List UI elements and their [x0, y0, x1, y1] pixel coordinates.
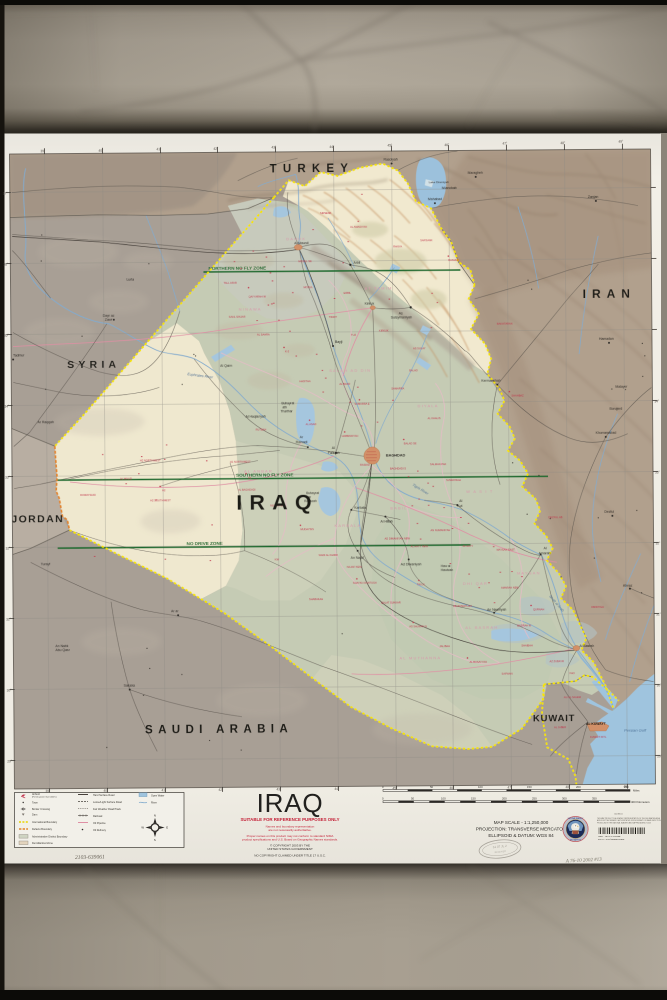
svg-text:IRAN: IRAN — [583, 287, 636, 301]
svg-text:RANYA: RANYA — [393, 244, 402, 248]
svg-text:Al Mawsil: Al Mawsil — [294, 241, 309, 245]
svg-text:Al Basrah: Al Basrah — [579, 644, 594, 648]
svg-text:250: 250 — [532, 796, 537, 800]
svg-text:Sulaymaniyah: Sulaymaniyah — [391, 315, 412, 319]
svg-text:AD DIWANIYAH NEW: AD DIWANIYAH NEW — [385, 536, 411, 540]
svg-text:SHAYKH HANTUSH: SHAYKH HANTUSH — [353, 581, 377, 585]
svg-text:SHAIBAH: SHAIBAH — [521, 643, 533, 647]
svg-text:Dezful: Dezful — [604, 510, 614, 514]
svg-text:35°: 35° — [4, 334, 10, 338]
svg-text:37°: 37° — [3, 192, 9, 196]
svg-text:Karbala: Karbala — [354, 506, 366, 510]
svg-text:Fair Weather Road/Track: Fair Weather Road/Track — [93, 808, 122, 811]
svg-text:BALAD SE: BALAD SE — [404, 441, 417, 445]
svg-text:AL JABER: AL JABER — [554, 725, 566, 729]
svg-text:42°: 42° — [218, 788, 224, 792]
svg-text:350: 350 — [592, 796, 597, 800]
svg-text:IRAQ: IRAQ — [236, 490, 319, 515]
svg-text:W A S I T: W A S I T — [466, 489, 493, 494]
svg-text:NAJAF NEW: NAJAF NEW — [347, 565, 363, 569]
svg-text:32°: 32° — [6, 547, 12, 551]
svg-text:Open Water: Open Water — [151, 794, 165, 797]
svg-text:Al Hillah: Al Hillah — [380, 520, 393, 524]
svg-text:Tharthar: Tharthar — [281, 409, 294, 413]
svg-text:SALMAN PAK: SALMAN PAK — [430, 462, 447, 466]
svg-text:S: S — [154, 838, 156, 842]
svg-text:are not necessarily authoritat: are not necessarily authoritative. — [268, 828, 311, 832]
svg-text:ALI AL SALEM: ALI AL SALEM — [564, 695, 581, 699]
svg-text:33°: 33° — [655, 470, 661, 474]
svg-text:Lake Drumiyeh: Lake Drumiyeh — [429, 180, 450, 184]
svg-text:45°: 45° — [387, 144, 393, 148]
svg-text:ELLIPSOID & DATUM: WGS 84: ELLIPSOID & DATUM: WGS 84 — [488, 833, 554, 838]
svg-text:Maragheh: Maragheh — [468, 171, 483, 175]
svg-text:49°: 49° — [618, 140, 624, 144]
svg-text:AN NUMANIYAH: AN NUMANIYAH — [430, 528, 450, 532]
svg-text:SALAH AD DIN: SALAH AD DIN — [329, 368, 371, 373]
svg-text:An Najaf: An Najaf — [351, 556, 364, 560]
svg-text:2103-639061: 2103-639061 — [75, 854, 105, 861]
svg-text:MAYSAN: MAYSAN — [517, 570, 541, 575]
svg-text:Ar Raqqah: Ar Raqqah — [38, 420, 54, 424]
svg-text:Ahvaz: Ahvaz — [623, 584, 633, 588]
svg-text:H2 SOUTHWEST: H2 SOUTHWEST — [150, 498, 171, 502]
svg-text:47°: 47° — [502, 142, 508, 146]
svg-text:AL ASAD: AL ASAD — [306, 422, 317, 426]
svg-text:48°: 48° — [565, 785, 571, 789]
svg-text:AL KUWAYT: AL KUWAYT — [586, 722, 607, 726]
svg-text:product specifications and U.S: product specifications and U.S. Board on… — [242, 838, 338, 842]
svg-text:Amarah: Amarah — [539, 551, 551, 555]
svg-text:AL BAKR: AL BAKR — [339, 382, 350, 386]
svg-text:NO DRIVE ZONE: NO DRIVE ZONE — [187, 541, 223, 546]
svg-text:SHABAKAH: SHABAKAH — [309, 597, 323, 601]
svg-text:MAP SCALE - 1:1,250,000: MAP SCALE - 1:1,250,000 — [494, 820, 549, 825]
svg-text:Hawizah: Hawizah — [441, 568, 453, 572]
svg-text:Oil Pipeline: Oil Pipeline — [93, 822, 106, 825]
svg-text:Abu Qasr: Abu Qasr — [55, 648, 70, 652]
svg-text:Oil Refinery: Oil Refinery — [93, 829, 107, 832]
svg-text:AL BASRAH: AL BASRAH — [465, 625, 498, 630]
svg-text:JALIBAH: JALIBAH — [439, 644, 450, 648]
svg-text:Mianobab: Mianobab — [442, 186, 457, 190]
svg-text:Railroad: Railroad — [93, 815, 103, 818]
svg-text:AS SULAY: AS SULAY — [413, 346, 426, 350]
svg-text:44°: 44° — [329, 145, 335, 149]
svg-text:AL AMADIYAH: AL AMADIYAH — [350, 225, 367, 229]
svg-text:SAMARRA E: SAMARRA E — [354, 402, 369, 406]
svg-text:AL HAYY NEW: AL HAYY NEW — [411, 544, 429, 548]
svg-text:100: 100 — [441, 796, 446, 800]
svg-text:100: 100 — [478, 785, 483, 789]
svg-text:Administrative District Bounda: Administrative District Boundary — [32, 835, 68, 838]
svg-text:Al: Al — [332, 446, 335, 450]
svg-text:Dam: Dam — [32, 814, 37, 817]
svg-text:48°: 48° — [560, 141, 566, 145]
svg-text:BAGHDAD IS: BAGHDAD IS — [390, 466, 406, 470]
svg-text:Al: Al — [459, 499, 462, 503]
svg-text:29°: 29° — [657, 754, 663, 758]
svg-text:TUZ: TUZ — [351, 333, 356, 337]
svg-text:DIYALA: DIYALA — [417, 403, 438, 408]
svg-text:200: 200 — [502, 796, 507, 800]
svg-text:QURNAH: QURNAH — [533, 607, 544, 611]
svg-text:Bayji: Bayji — [335, 340, 343, 344]
svg-text:RUTBAH: RUTBAH — [256, 428, 267, 432]
svg-text:Kermanshah: Kermanshah — [481, 379, 500, 383]
svg-text:164-GMIL21: 164-GMIL21 — [614, 814, 623, 816]
svg-text:UNITED STATES GOVERNMENT: UNITED STATES GOVERNMENT — [267, 847, 313, 851]
svg-text:Al Haqlanyah: Al Haqlanyah — [246, 415, 266, 419]
svg-text:DSPLY-434/GRAGRLPGRA: DSPLY-434/GRAGRLPGRA — [598, 838, 625, 841]
svg-text:Persian Gulf: Persian Gulf — [624, 728, 647, 733]
svg-text:Defacto Boundary: Defacto Boundary — [32, 828, 53, 831]
svg-text:KW: KW — [275, 557, 280, 561]
svg-text:JORDAN: JORDAN — [11, 513, 64, 525]
svg-text:Mahabad: Mahabad — [428, 197, 442, 201]
svg-text:43°: 43° — [271, 145, 277, 149]
svg-text:31°: 31° — [656, 612, 662, 616]
svg-text:150: 150 — [527, 785, 532, 789]
svg-text:AZ ZUBAYR: AZ ZUBAYR — [549, 659, 564, 663]
svg-text:NO COPYRIGHT CLAIMED UNDER TIT: NO COPYRIGHT CLAIMED UNDER TITLE 17 U.S.… — [254, 854, 326, 858]
svg-text:SUWAYRAH: SUWAYRAH — [446, 478, 461, 482]
svg-text:DAHUK: DAHUK — [286, 236, 306, 241]
svg-text:SYRIA: SYRIA — [67, 359, 120, 371]
svg-text:30°: 30° — [657, 683, 663, 687]
svg-text:AL WALID: AL WALID — [120, 477, 132, 481]
svg-text:BALAD: BALAD — [409, 368, 418, 372]
svg-text:Kut: Kut — [457, 504, 462, 508]
svg-text:36°: 36° — [3, 263, 9, 267]
svg-text:ERBIL: ERBIL — [344, 291, 352, 295]
svg-text:Arbil: Arbil — [353, 261, 360, 265]
svg-text:K-2: K-2 — [285, 349, 290, 353]
svg-text:300: 300 — [562, 796, 567, 800]
svg-text:AL SAHRA: AL SAHRA — [257, 332, 270, 336]
svg-text:IRAQ: IRAQ — [257, 788, 324, 818]
svg-text:WADI AL KHIRR: WADI AL KHIRR — [319, 553, 338, 557]
svg-text:AL HAYY: AL HAYY — [463, 544, 474, 548]
svg-text:BASHUR: BASHUR — [448, 258, 459, 262]
svg-text:(Permits greater than 3,000 ft: (Permits greater than 3,000 ft.) — [32, 796, 57, 799]
svg-text:KUWAIT: KUWAIT — [533, 713, 575, 724]
svg-text:44°: 44° — [334, 787, 340, 791]
svg-text:QALAT SUKKAR: QALAT SUKKAR — [381, 600, 401, 604]
svg-text:Malayer: Malayer — [615, 385, 628, 389]
svg-text:40°: 40° — [98, 149, 104, 153]
svg-text:N: N — [154, 814, 156, 818]
svg-text:AL MUTHANNA: AL MUTHANNA — [399, 655, 441, 660]
svg-text:NORTHERN NO FLY ZONE: NORTHERN NO FLY ZONE — [208, 266, 266, 271]
svg-text:DHI QAR: DHI QAR — [463, 581, 488, 586]
svg-text:SAHL SINJAR: SAHL SINJAR — [229, 315, 246, 319]
svg-text:34°: 34° — [654, 399, 660, 403]
svg-text:SIRSENK: SIRSENK — [320, 211, 332, 215]
svg-text:MUDAYSIS: MUDAYSIS — [300, 527, 314, 531]
svg-text:Demilitarized Zone: Demilitarized Zone — [32, 842, 53, 845]
svg-text:AL ANBAR: AL ANBAR — [244, 468, 273, 473]
svg-text:E: E — [166, 826, 168, 830]
svg-text:Town: Town — [32, 801, 38, 804]
svg-text:SARSANK: SARSANK — [420, 238, 433, 242]
svg-text:41°: 41° — [156, 147, 162, 151]
svg-text:International Boundary: International Boundary — [32, 821, 58, 824]
svg-text:AL KHALIS: AL KHALIS — [428, 416, 441, 420]
svg-text:MOSUL: MOSUL — [304, 285, 314, 289]
svg-text:FAO: FAO — [570, 671, 575, 675]
svg-text:150: 150 — [471, 796, 476, 800]
svg-text:TALL AFAR: TALL AFAR — [224, 281, 237, 285]
svg-text:Ramadi: Ramadi — [296, 440, 308, 444]
svg-text:42°: 42° — [213, 147, 219, 151]
svg-text:PROJECTION: TRANSVERSE MERCATO: PROJECTION: TRANSVERSE MERCATOR — [476, 827, 567, 832]
svg-text:QAYYARAH W: QAYYARAH W — [249, 295, 267, 299]
svg-text:AL BUSAYYAH: AL BUSAYYAH — [469, 660, 487, 664]
svg-text:BASRAH W: BASRAH W — [517, 623, 531, 627]
svg-text:HADITHA: HADITHA — [299, 379, 311, 383]
svg-text:AS SALMAN N: AS SALMAN N — [409, 624, 427, 628]
svg-text:33°: 33° — [5, 476, 11, 480]
svg-text:Hamadan: Hamadan — [599, 337, 614, 341]
svg-text:Loose/Light Surface Road: Loose/Light Surface Road — [93, 801, 123, 804]
svg-text:SAFWAN: SAFWAN — [502, 672, 513, 676]
svg-text:Kirkuk: Kirkuk — [365, 302, 375, 306]
svg-text:46°: 46° — [444, 143, 450, 147]
svg-text:Al Qaim: Al Qaim — [220, 364, 232, 368]
svg-text:BAGHDAD: BAGHDAD — [386, 453, 406, 457]
svg-text:NINAWA: NINAWA — [239, 307, 262, 312]
svg-text:Turayf: Turayf — [41, 562, 51, 566]
svg-text:AT TAMIM: AT TAMIM — [365, 286, 393, 291]
svg-text:31°: 31° — [6, 618, 12, 622]
svg-text:Tadmur: Tadmur — [13, 353, 25, 357]
svg-text:47°: 47° — [507, 786, 513, 790]
svg-text:Border Crossing: Border Crossing — [32, 808, 51, 811]
svg-text:SAMARRA: SAMARRA — [391, 386, 404, 390]
svg-text:Hard Surface Road: Hard Surface Road — [93, 794, 115, 797]
svg-text:RASHID: RASHID — [360, 463, 370, 467]
svg-text:BAKHTARAN: BAKHTARAN — [497, 322, 513, 326]
svg-text:H2 NORTHWEST: H2 NORTHWEST — [140, 458, 161, 462]
svg-text:H1 NORTHWEST: H1 NORTHWEST — [230, 460, 251, 464]
svg-text:BABIL: BABIL — [390, 505, 407, 510]
svg-text:Ad Diwaniyah: Ad Diwaniyah — [401, 562, 422, 566]
svg-text:KUWAIT INTL: KUWAIT INTL — [590, 735, 607, 739]
svg-text:TURKEY: TURKEY — [270, 163, 355, 176]
svg-text:TALLIL: TALLIL — [417, 582, 426, 586]
svg-text:OMIDIYEH: OMIDIYEH — [591, 605, 604, 609]
svg-text:HABBANIYAH: HABBANIYAH — [342, 434, 359, 438]
svg-text:MAYSAN EAST: MAYSAN EAST — [497, 548, 516, 552]
svg-text:SUITABLE FOR REFERENCE PURPOSE: SUITABLE FOR REFERENCE PURPOSES ONLY — [240, 817, 339, 822]
svg-text:41°: 41° — [161, 788, 167, 792]
svg-text:H1: H1 — [248, 476, 252, 480]
svg-text:KIRKUK: KIRKUK — [379, 329, 389, 333]
svg-text:Lurla: Lurla — [126, 278, 134, 282]
svg-text:400 Kilometers: 400 Kilometers — [631, 800, 650, 804]
svg-text:50: 50 — [411, 796, 415, 800]
svg-text:39°: 39° — [40, 149, 46, 153]
svg-text:Al: Al — [544, 546, 547, 550]
svg-text:30°: 30° — [7, 689, 13, 693]
svg-text:29°: 29° — [7, 760, 13, 764]
svg-text:KARBALA: KARBALA — [334, 523, 361, 528]
svg-text:Borujerd: Borujerd — [610, 407, 623, 411]
svg-text:W: W — [141, 826, 144, 830]
svg-text:River: River — [151, 802, 157, 805]
svg-text:SAUDI ARABIA: SAUDI ARABIA — [145, 723, 293, 736]
svg-text:Airfield: Airfield — [32, 793, 40, 796]
svg-text:250: 250 — [624, 785, 629, 789]
svg-text:Fallujah: Fallujah — [328, 451, 340, 455]
svg-text:Zawr: Zawr — [105, 318, 113, 322]
svg-text:AMARAH NEW: AMARAH NEW — [501, 586, 519, 590]
svg-text:An Nasiriyah: An Nasiriyah — [487, 608, 506, 612]
svg-text:Khorramabad: Khorramabad — [596, 431, 617, 435]
svg-text:Miles: Miles — [633, 789, 640, 793]
svg-text:SHAHBAZ: SHAHBAZ — [511, 393, 524, 397]
svg-text:Sakaka: Sakaka — [124, 684, 135, 688]
svg-text:50: 50 — [430, 785, 434, 789]
svg-text:RUWAYSHID: RUWAYSHID — [80, 493, 96, 497]
svg-text:200: 200 — [576, 785, 581, 789]
svg-text:34°: 34° — [4, 405, 10, 409]
svg-text:TIKRIT: TIKRIT — [329, 315, 338, 319]
svg-text:Zanjan: Zanjan — [588, 195, 599, 199]
svg-text:Ar ar: Ar ar — [171, 609, 179, 613]
svg-text:Rasolyah: Rasolyah — [384, 157, 398, 161]
svg-text:MOSUL SE: MOSUL SE — [298, 259, 312, 263]
svg-text:H2: H2 — [162, 488, 166, 492]
svg-text:32°: 32° — [656, 541, 662, 545]
svg-text:AR RUMAYLAH: AR RUMAYLAH — [453, 604, 472, 608]
